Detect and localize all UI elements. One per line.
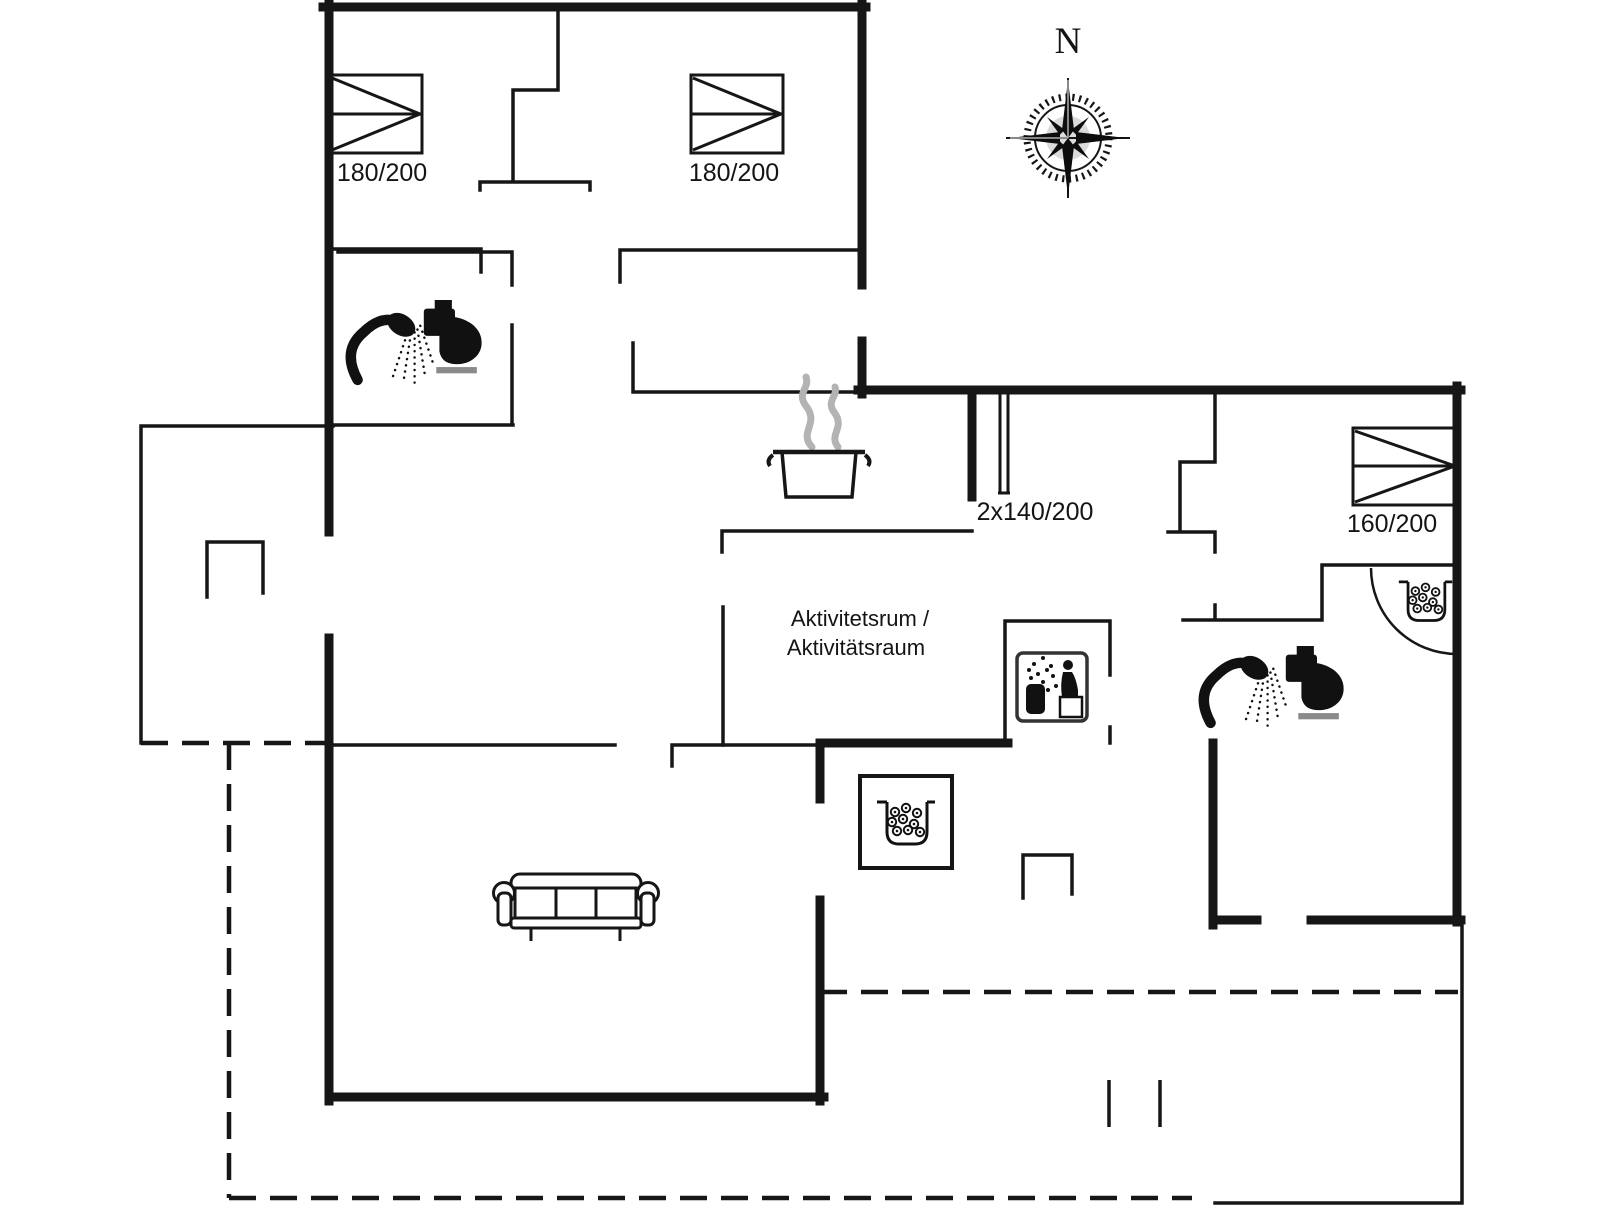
exterior-walls [323, 2, 1461, 1101]
terrace-dashed-boundary [141, 743, 1458, 1198]
cooking-pot-icon [769, 377, 870, 497]
stove-tray-icon-entry [1399, 582, 1452, 621]
bunk-bed-icon [998, 394, 1010, 493]
sofa-icon [494, 874, 659, 941]
floor-plan: N 180/200 180/200 2x140/200 160/200 Akti… [0, 0, 1606, 1205]
compass-north-label: N [1055, 21, 1082, 62]
bed-size-label-top-left: 180/200 [337, 159, 427, 187]
activity-room-label-line2: Aktivitätsraum [787, 635, 925, 660]
shower-icon [351, 308, 434, 384]
sauna-icon [1017, 653, 1087, 721]
double-bed-right-icon [1353, 428, 1457, 505]
toilet-icon-2 [1286, 646, 1344, 719]
double-bed-top-left-icon [330, 75, 422, 153]
bed-size-label-top-middle: 180/200 [689, 159, 779, 187]
wood-stove-icon [860, 776, 952, 868]
bed-size-label-right: 160/200 [1347, 510, 1437, 538]
floor-plan-canvas: N 180/200 180/200 2x140/200 160/200 Akti… [0, 0, 1606, 1205]
bunk-bed-size-label: 2x140/200 [977, 498, 1094, 526]
activity-room-label-line1: Aktivitetsrum / [791, 606, 930, 631]
shower-icon-2 [1204, 651, 1287, 727]
terrace-step-marks [1109, 1080, 1160, 1127]
compass-rose-icon [1006, 78, 1130, 198]
double-bed-top-middle-icon [691, 75, 783, 153]
